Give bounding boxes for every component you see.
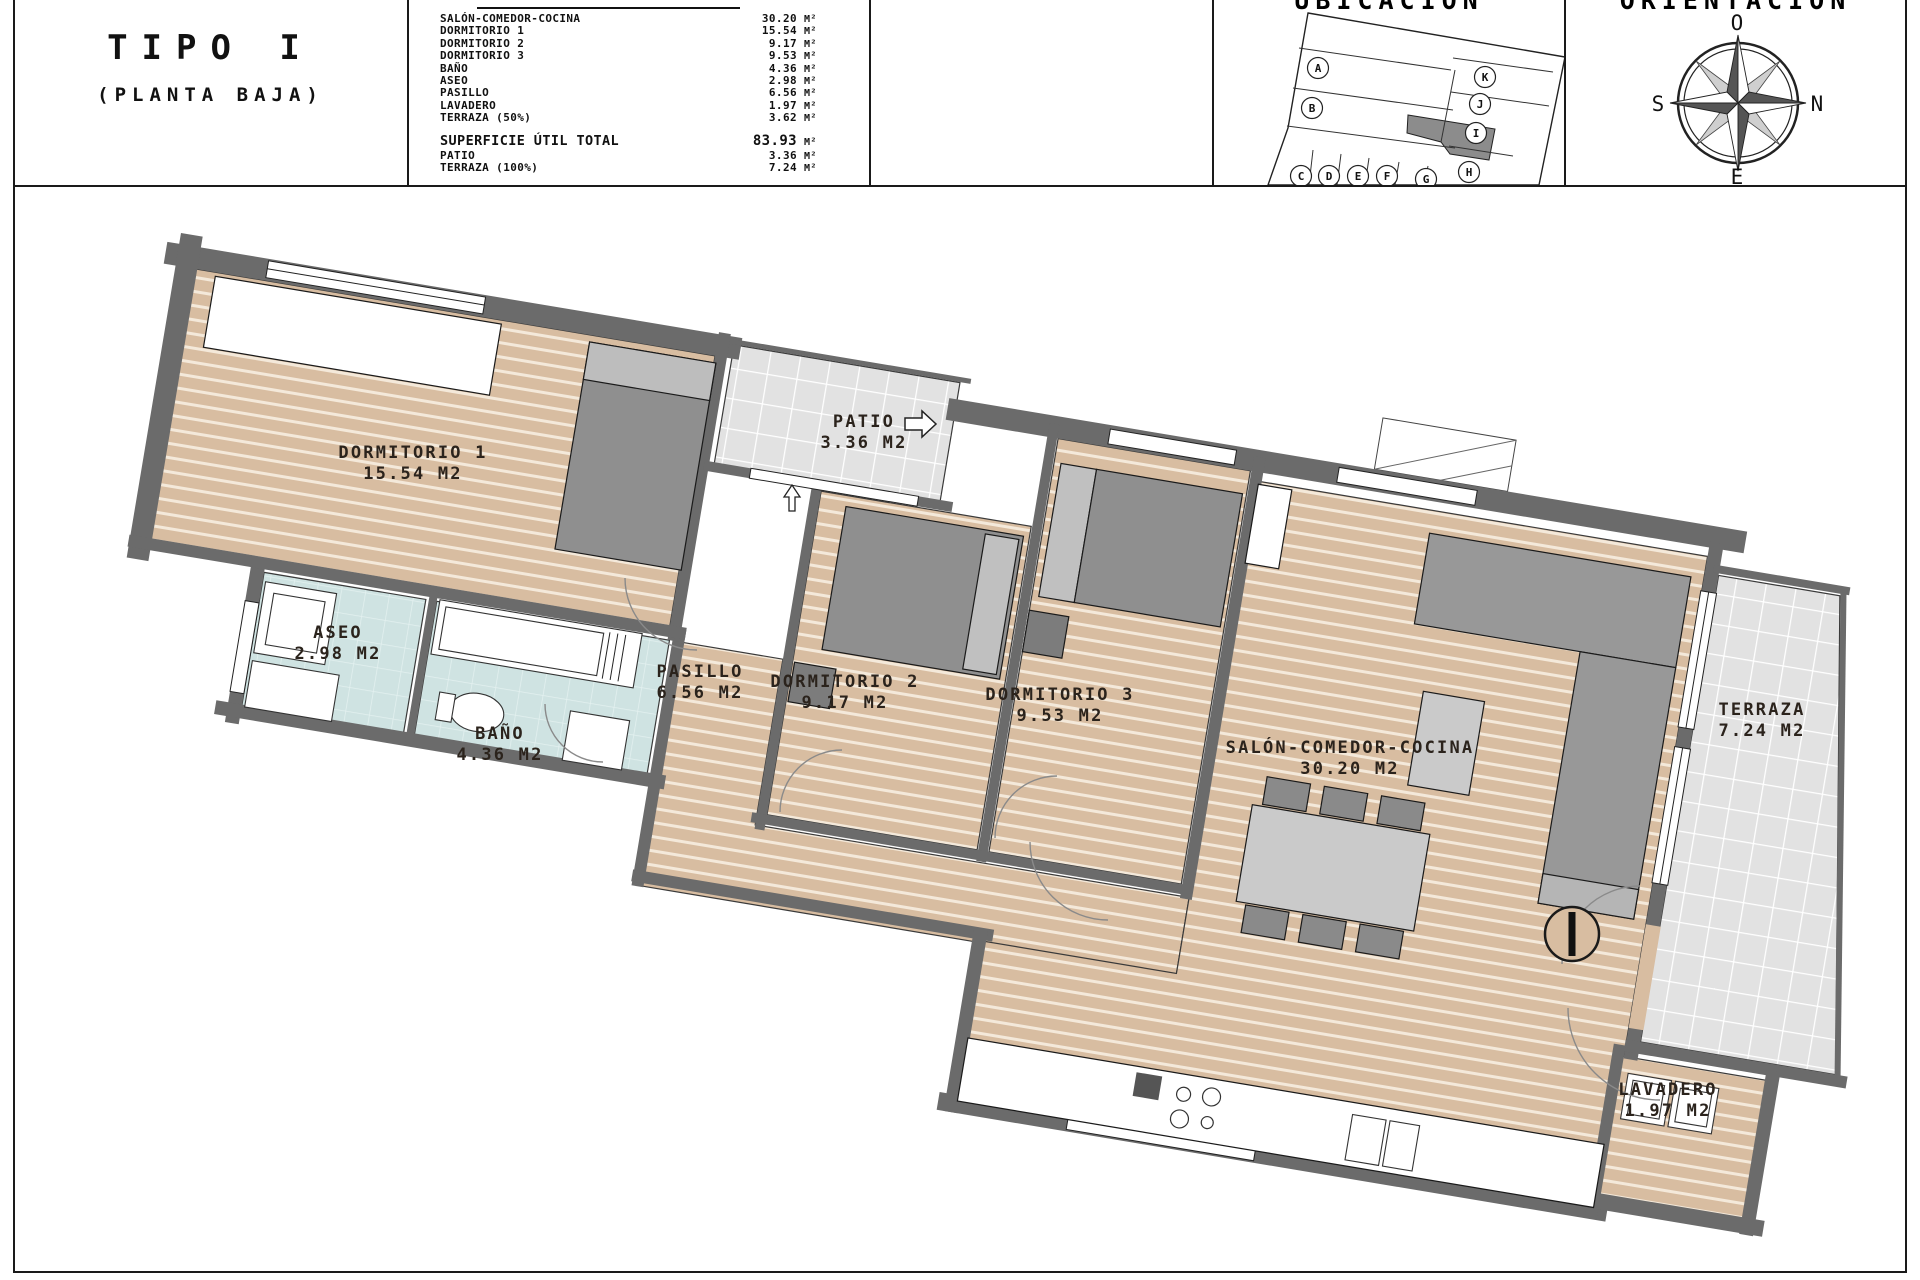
plan-floor-subtitle: (PLANTA BAJA) xyxy=(13,84,408,106)
svg-text:C: C xyxy=(1298,170,1305,183)
table-row: DORMITORIO 29.17M² xyxy=(440,37,840,49)
sink xyxy=(1345,1114,1386,1165)
sheet-border-right xyxy=(1905,0,1907,1272)
area-table-panel: SALÓN-COMEDOR-COCINA30.20M² DORMITORIO 1… xyxy=(408,0,870,185)
svg-text:F: F xyxy=(1384,170,1391,183)
table-header-rule xyxy=(477,7,740,9)
table-row: DORMITORIO 115.54M² xyxy=(440,24,840,36)
area-table: SALÓN-COMEDOR-COCINA30.20M² DORMITORIO 1… xyxy=(440,12,840,173)
location-panel: UBICACIÓN A B C D E F G H I J xyxy=(1213,0,1565,185)
svg-text:H: H xyxy=(1466,166,1473,179)
oven xyxy=(1133,1072,1163,1100)
orientation-header: ORIENTACIÓN xyxy=(1565,0,1906,15)
svg-text:D: D xyxy=(1326,170,1333,183)
header-divider xyxy=(869,0,871,186)
nightstand-dorm3 xyxy=(1022,610,1068,658)
table-row: ASEO2.98M² xyxy=(440,74,840,86)
title-panel: TIPO I (PLANTA BAJA) xyxy=(13,0,408,185)
header-divider xyxy=(1212,0,1214,186)
table-row: TERRAZA (50%)3.62M² xyxy=(440,111,840,123)
svg-text:G: G xyxy=(1423,173,1430,185)
table-row: TERRAZA (100%)7.24M² xyxy=(440,161,840,173)
table-row: BAÑO4.36M² xyxy=(440,62,840,74)
room-label-dormitorio-2: DORMITORIO 29.17 M2 xyxy=(770,672,919,714)
location-key-plan: A B C D E F G H I J K xyxy=(1213,0,1565,185)
svg-text:A: A xyxy=(1315,62,1322,75)
compass-north-label: N xyxy=(1811,92,1824,116)
header-separator xyxy=(13,185,1907,187)
room-label-terraza: TERRAZA7.24 M2 xyxy=(1718,700,1805,742)
compass-rose-icon: O N S E xyxy=(1565,0,1906,185)
room-label-banio: BAÑO4.36 M2 xyxy=(456,724,543,766)
header-divider xyxy=(407,0,409,186)
location-header: UBICACIÓN xyxy=(1213,0,1565,15)
orientation-panel: ORIENTACIÓN O N S E xyxy=(1565,0,1906,185)
table-row: PATIO3.36M² xyxy=(440,149,840,161)
sheet-border-bottom xyxy=(13,1271,1907,1273)
room-label-lavadero: LAVADERO1.97 M2 xyxy=(1618,1080,1717,1122)
svg-text:J: J xyxy=(1477,98,1484,111)
header-divider xyxy=(1564,0,1566,186)
svg-text:K: K xyxy=(1482,71,1489,84)
header-strip: TIPO I (PLANTA BAJA) SALÓN-COMEDOR-COCIN… xyxy=(0,0,1920,185)
table-row: LAVADERO1.97M² xyxy=(440,99,840,111)
table-row: DORMITORIO 39.53M² xyxy=(440,49,840,61)
room-label-pasillo: PASILLO6.56 M2 xyxy=(656,662,743,704)
svg-text:E: E xyxy=(1355,170,1362,183)
room-label-salon: SALÓN-COMEDOR-COCINA30.20 M2 xyxy=(1226,738,1475,780)
room-label-aseo: ASEO2.98 M2 xyxy=(294,623,381,665)
unit-marker-circle xyxy=(1545,907,1599,961)
floorplan-sheet: { "title_block": { "title": "TIPO I", "s… xyxy=(0,0,1920,1280)
room-label-patio: PATIO3.36 M2 xyxy=(820,412,907,454)
room-label-dormitorio-3: DORMITORIO 39.53 M2 xyxy=(985,685,1134,727)
compass-south-label: S xyxy=(1652,92,1665,116)
svg-text:B: B xyxy=(1309,102,1316,115)
table-row: PASILLO6.56M² xyxy=(440,86,840,98)
table-total-row: SUPERFICIE ÚTIL TOTAL83.93M² xyxy=(440,133,840,149)
svg-text:I: I xyxy=(1473,127,1480,140)
table-row: SALÓN-COMEDOR-COCINA30.20M² xyxy=(440,12,840,24)
compass-east-label: E xyxy=(1731,165,1744,185)
bed-dorm3 xyxy=(1074,469,1242,627)
plan-type-title: TIPO I xyxy=(13,28,408,68)
arrow-up-icon xyxy=(784,485,800,511)
room-label-dormitorio-1: DORMITORIO 115.54 M2 xyxy=(338,443,487,485)
sheet-border-left xyxy=(13,0,15,1272)
